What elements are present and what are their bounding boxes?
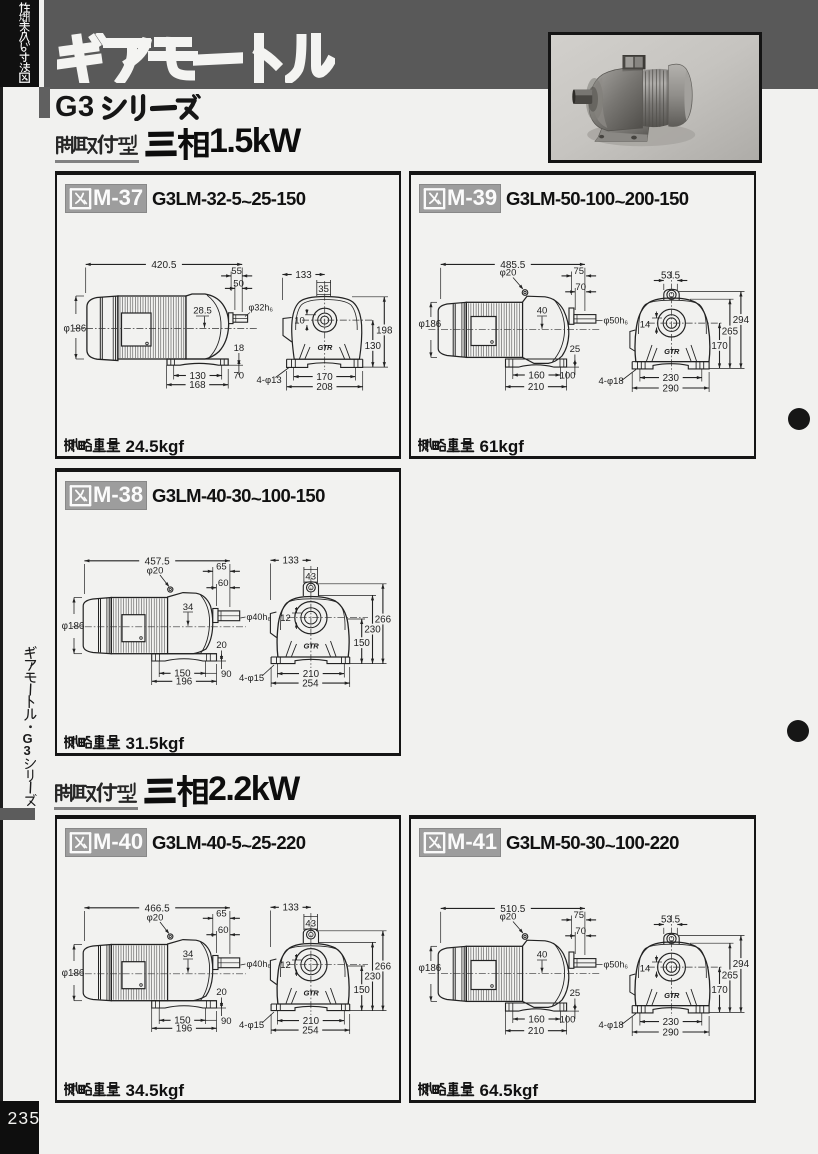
svg-text:196: 196 bbox=[176, 1024, 193, 1035]
svg-text:150: 150 bbox=[354, 985, 371, 996]
svg-text:230: 230 bbox=[364, 972, 381, 983]
svg-text:294: 294 bbox=[733, 315, 750, 326]
svg-text:43: 43 bbox=[305, 572, 316, 583]
svg-text:230: 230 bbox=[663, 373, 680, 384]
svg-text:28.5: 28.5 bbox=[193, 306, 212, 317]
svg-text:70: 70 bbox=[234, 370, 245, 381]
svg-text:266: 266 bbox=[375, 961, 392, 972]
svg-text:53.5: 53.5 bbox=[661, 915, 681, 926]
svg-text:60: 60 bbox=[218, 578, 229, 589]
svg-text:100: 100 bbox=[560, 1014, 576, 1025]
svg-text:230: 230 bbox=[364, 625, 381, 636]
svg-text:196: 196 bbox=[176, 677, 193, 688]
svg-text:170: 170 bbox=[711, 341, 728, 352]
svg-text:35: 35 bbox=[318, 284, 329, 295]
svg-text:φ186: φ186 bbox=[419, 963, 442, 974]
svg-text:210: 210 bbox=[528, 1026, 545, 1037]
svg-text:18: 18 bbox=[234, 343, 245, 354]
svg-text:150: 150 bbox=[354, 638, 371, 649]
svg-text:GTR: GTR bbox=[303, 989, 319, 998]
svg-text:55: 55 bbox=[231, 266, 242, 277]
svg-text:70: 70 bbox=[575, 926, 586, 937]
svg-text:φ186: φ186 bbox=[64, 324, 87, 335]
svg-text:14: 14 bbox=[640, 963, 651, 974]
svg-text:294: 294 bbox=[733, 959, 750, 970]
svg-text:43: 43 bbox=[305, 919, 316, 930]
svg-text:φ20: φ20 bbox=[147, 913, 164, 924]
svg-text:65: 65 bbox=[216, 909, 227, 920]
svg-text:53.5: 53.5 bbox=[661, 271, 681, 282]
svg-text:90: 90 bbox=[221, 1016, 232, 1027]
svg-text:20: 20 bbox=[216, 640, 227, 651]
svg-text:12: 12 bbox=[280, 960, 291, 971]
svg-text:265: 265 bbox=[722, 326, 739, 337]
svg-text:208: 208 bbox=[316, 382, 333, 393]
svg-text:75: 75 bbox=[574, 266, 585, 277]
svg-text:230: 230 bbox=[663, 1017, 680, 1028]
svg-text:GTR: GTR bbox=[317, 343, 332, 352]
svg-text:φ186: φ186 bbox=[62, 621, 85, 632]
svg-text:133: 133 bbox=[295, 270, 312, 281]
svg-text:290: 290 bbox=[663, 1027, 680, 1038]
svg-text:34: 34 bbox=[183, 949, 194, 960]
svg-text:φ20: φ20 bbox=[147, 566, 164, 577]
svg-text:170: 170 bbox=[711, 985, 728, 996]
svg-text:90: 90 bbox=[221, 669, 232, 680]
svg-text:75: 75 bbox=[574, 910, 585, 921]
svg-text:14: 14 bbox=[640, 319, 651, 330]
svg-text:160: 160 bbox=[528, 1014, 545, 1025]
svg-text:265: 265 bbox=[722, 970, 739, 981]
svg-text:φ20: φ20 bbox=[500, 268, 517, 279]
svg-text:133: 133 bbox=[283, 556, 300, 567]
svg-text:10: 10 bbox=[294, 316, 305, 327]
svg-text:12: 12 bbox=[280, 613, 291, 624]
svg-text:130: 130 bbox=[365, 341, 382, 352]
svg-text:65: 65 bbox=[216, 562, 227, 573]
svg-text:100: 100 bbox=[560, 370, 576, 381]
svg-text:GTR: GTR bbox=[664, 347, 680, 356]
svg-text:34: 34 bbox=[183, 602, 194, 613]
svg-text:210: 210 bbox=[528, 382, 545, 393]
svg-text:GTR: GTR bbox=[664, 991, 680, 1000]
svg-text:168: 168 bbox=[189, 380, 206, 391]
svg-text:254: 254 bbox=[302, 1026, 319, 1037]
svg-text:198: 198 bbox=[376, 325, 393, 336]
svg-text:25: 25 bbox=[570, 344, 581, 355]
svg-text:70: 70 bbox=[575, 282, 586, 293]
svg-text:254: 254 bbox=[302, 679, 319, 690]
svg-text:40: 40 bbox=[537, 950, 548, 961]
svg-text:φ186: φ186 bbox=[419, 319, 442, 330]
svg-text:266: 266 bbox=[375, 614, 392, 625]
svg-text:60: 60 bbox=[218, 925, 229, 936]
svg-text:20: 20 bbox=[216, 987, 227, 998]
svg-text:160: 160 bbox=[528, 370, 545, 381]
svg-text:φ20: φ20 bbox=[500, 912, 517, 923]
svg-text:290: 290 bbox=[663, 383, 680, 394]
svg-text:φ186: φ186 bbox=[62, 968, 85, 979]
svg-text:25: 25 bbox=[570, 988, 581, 999]
svg-text:GTR: GTR bbox=[303, 642, 319, 651]
svg-text:133: 133 bbox=[283, 903, 300, 914]
svg-text:420.5: 420.5 bbox=[151, 260, 176, 271]
svg-text:40: 40 bbox=[537, 306, 548, 317]
